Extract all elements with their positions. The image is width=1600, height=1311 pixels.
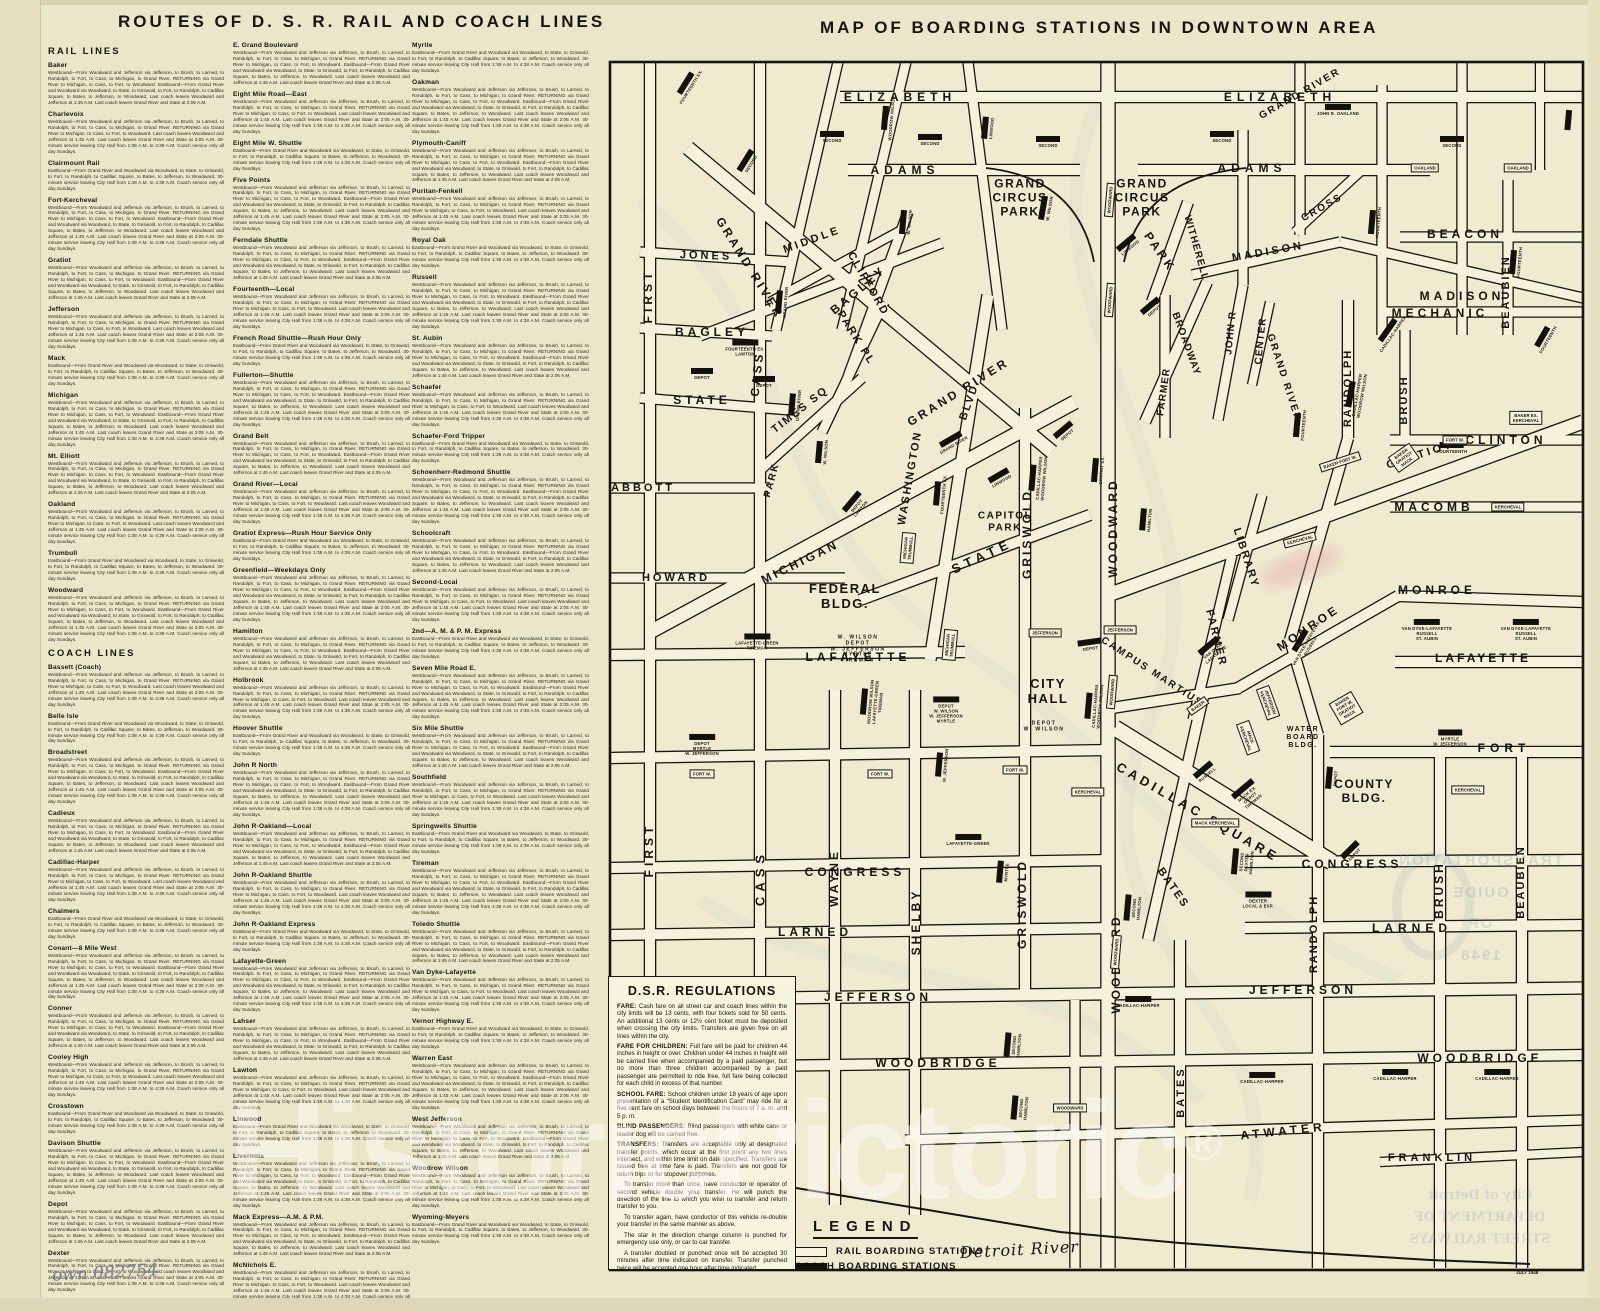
coach-station-marker-second: SECOND xyxy=(1210,131,1234,143)
coach-station-marker-myrtle: MYRTLE xyxy=(996,861,1010,884)
coach-station-bar-icon xyxy=(691,368,713,374)
transit-map-page: ROUTES OF D. S. R. RAIL AND COACH LINES … xyxy=(0,0,1600,1311)
street-label-brush: BRUSH xyxy=(1432,861,1446,919)
coach-station-marker-second: SECOND xyxy=(1036,136,1060,148)
coach-station-bar-icon xyxy=(744,633,770,639)
street-label-congress: CONGRESS xyxy=(805,865,906,879)
coach-station-label: SECOND xyxy=(918,141,942,146)
coach-station-marker-cadillac-harper: CADILLAC-HARPER xyxy=(1116,996,1159,1008)
street-label-beaubien: BEAUBIEN xyxy=(1515,845,1527,918)
street-label-clinton: CLINTON xyxy=(1465,433,1546,447)
coach-station-marker-gratiot-ex: GRATIOT EX. xyxy=(1091,455,1105,485)
street-label-franklin: FRANKLIN xyxy=(1388,1152,1476,1164)
rail-station-swatch-icon xyxy=(795,1247,827,1257)
coach-station-bar-icon xyxy=(1440,136,1464,142)
regulation-paragraph-note-8: A transfer doubled or punched once will … xyxy=(617,1250,787,1270)
rail-station-label-mack-kercheval: MACK KERCHEVAL xyxy=(1191,818,1239,827)
coach-station-label: VAN DYKE-LAFAYETTE RUSSELL ST. AUBIN xyxy=(1501,626,1551,641)
street-label-brush: BRUSH xyxy=(1398,375,1410,424)
watermark-text: HistoricPictoric xyxy=(228,1074,1184,1228)
coach-station-label: VAN DYKE-LAFAYETTE RUSSELL ST. AUBIN xyxy=(1402,626,1452,641)
rail-station-label-oakland: OAKLAND xyxy=(1411,163,1439,172)
coach-station-label: DEPOT xyxy=(691,375,713,380)
coach-station-bar-icon xyxy=(1438,729,1462,735)
street-label-madison: MADISON xyxy=(1420,289,1505,303)
coach-station-marker-fourteenth-ex: FOURTEENTH EX. LAWTON xyxy=(725,339,764,356)
coach-station-bar-icon xyxy=(918,134,942,140)
coach-station-bar-icon xyxy=(732,339,758,345)
street-label-shelby: SHELBY xyxy=(909,889,923,956)
coach-station-marker-lafayette-green: LAFAYETTE-GREEN xyxy=(946,834,989,846)
coach-station-marker-depot: DEPOT xyxy=(691,368,713,380)
coach-station-bar-icon xyxy=(1513,619,1539,625)
coach-station-label: CADILLAC-HARPER xyxy=(1475,1076,1518,1081)
street-label-randolph: RANDOLPH xyxy=(1308,895,1320,973)
coach-station-label: SECOND HAMILTON xyxy=(1010,1033,1022,1058)
rail-station-label-oakland: OAKLAND xyxy=(1504,163,1532,172)
rail-station-label-fort-w: FORT W. xyxy=(1443,435,1468,444)
rail-station-label-michigan: MICHIGAN TRUMBULL xyxy=(900,532,917,564)
coach-station-bar-icon xyxy=(1036,136,1060,142)
coach-station-bar-icon xyxy=(933,696,959,702)
coach-station-label: LAFAYETTE-GREEN TIREMAN xyxy=(735,640,778,650)
coach-station-marker-depot: DEPOT MYRTLE W. JEFFERSON xyxy=(685,734,719,756)
coach-station-marker-woodrow-wilson: WOODROW WILSON LAFAYETTE-GREEN TIREMAN xyxy=(859,679,885,725)
coach-station-bar-icon xyxy=(1484,1069,1510,1075)
regulation-heading: FARE FOR CHILDREN: xyxy=(617,1043,690,1050)
street-label-adams: ADAMS xyxy=(1218,161,1287,175)
coach-station-label: CADILLAC-HARPER xyxy=(1116,1003,1159,1008)
rail-station-label-jefferson: JEFFERSON xyxy=(1029,628,1062,637)
rail-station-label-michigan: MICHIGAN TRUMBULL xyxy=(942,629,959,661)
map-date-note: JULY 1948 xyxy=(1516,1270,1538,1275)
street-label-monroe: MONROE xyxy=(1398,583,1476,597)
street-label-macomb: MACOMB xyxy=(1394,500,1473,514)
coach-station-label: CADILLAC-HARPER xyxy=(1240,1079,1283,1084)
street-label-griswold: GRISWOLD xyxy=(1020,489,1034,579)
coach-station-marker-second: SECOND DEXTER HAMILTON xyxy=(1231,848,1255,876)
coach-station-label: DEPOT MYRTLE W. JEFFERSON xyxy=(685,741,719,756)
street-label-howard: HOWARD xyxy=(642,572,710,584)
street-label-jones: JONES xyxy=(680,249,733,263)
landmark-federal: FEDERAL BLDG. xyxy=(809,582,881,612)
street-label-larned: LARNED xyxy=(778,925,852,939)
coach-station-marker-depot: DEPOT xyxy=(753,376,775,388)
rail-station-label-kercheval: KERCHEVAL xyxy=(1491,502,1524,511)
coach-station-label: JOHN R. OAKLAND xyxy=(1317,111,1359,116)
street-label-griswold: GRISWOLD xyxy=(1015,859,1029,949)
coach-station-bar-icon xyxy=(753,376,775,382)
coach-station-marker-dexter: DEXTER LOCAL & EXP. xyxy=(1242,891,1273,908)
rail-station-label-fort-w: FORT W. xyxy=(690,769,715,778)
coach-station-marker-john-r-oakland: JOHN R. OAKLAND xyxy=(1317,104,1359,116)
coach-station-marker-van-dyke-lafayette: VAN DYKE-LAFAYETTE RUSSELL ST. AUBIN xyxy=(1402,619,1452,641)
landmark-city: CITY HALL xyxy=(1028,677,1069,707)
coach-station-bar-icon xyxy=(1249,1072,1275,1078)
coach-station-label: LAFAYETTE-GREEN xyxy=(946,841,989,846)
street-label-first: FIRST xyxy=(642,823,656,878)
coach-station-marker-w-wilson: W. WILSON xyxy=(899,209,913,235)
street-label-jefferson: JEFFERSON xyxy=(1249,983,1357,997)
coach-station-bar-icon xyxy=(955,834,981,840)
watermark: HistoricPictoric® xyxy=(228,1072,1222,1231)
coach-station-marker-van-dyke-lafayette: VAN DYKE-LAFAYETTE RUSSELL ST. AUBIN xyxy=(1501,619,1551,641)
rail-station-label-fort-w: FORT W. xyxy=(1003,765,1028,774)
coach-station-bar-icon xyxy=(1382,1069,1408,1075)
coach-station-label: CADILLAC-HARPER xyxy=(1373,1076,1416,1081)
street-label-adams: ADAMS xyxy=(871,163,940,177)
coach-station-bar-icon xyxy=(1210,131,1234,137)
coach-station-marker-w-wilson: W. WILSON xyxy=(815,439,829,465)
coach-station-label: SECOND xyxy=(1210,138,1234,143)
coach-station-swatch-icon xyxy=(795,1263,827,1271)
rail-station-label-jefferson: JEFFERSON xyxy=(1104,625,1137,634)
street-label-bagley: BAGLEY xyxy=(675,325,749,339)
rail-station-label-fort-w: FORT W. xyxy=(868,769,893,778)
coach-station-label: SECOND xyxy=(1036,143,1060,148)
street-label-lafayette: LAFAYETTE xyxy=(1435,651,1531,665)
coach-station-marker-second: SECOND HAMILTON xyxy=(1123,894,1142,921)
street-label-elizabeth: ELIZABETH xyxy=(844,90,956,104)
coach-station-marker-depot: DEPOT W. WILSON W. JEFFERSON MYRTLE xyxy=(929,696,963,723)
regulation-paragraph-fare: FARE: Cash fare on all street car and co… xyxy=(617,1003,787,1040)
coach-station-label: SECOND xyxy=(820,138,844,143)
landmark-capitol: CAPITOL PARK xyxy=(978,511,1032,534)
landmark-county: COUNTY BLDG. xyxy=(1334,778,1394,806)
landmark-depot: DEPOT W. WILSON xyxy=(1024,721,1065,733)
coach-station-marker-cadillac-harper: CADILLAC-HARPER xyxy=(1240,1072,1283,1084)
reverse-side-showthrough-imprint: City of Detroit DEPARTMENT OF STREET RAI… xyxy=(1385,1185,1575,1251)
regulation-heading: FARE: xyxy=(617,1003,639,1010)
coach-station-label: MYRTLE W. JEFFERSON xyxy=(1433,736,1467,746)
rail-station-label-kercheval: KERCHEVAL xyxy=(1071,787,1104,796)
street-label-cass: CASS xyxy=(753,850,768,906)
coach-station-bar-icon xyxy=(820,131,844,137)
coach-station-label: DEXTER LOCAL & EXP. xyxy=(1242,898,1273,908)
street-label-larned: LARNED xyxy=(1372,921,1452,935)
coach-station-marker-linwood: LINWOOD xyxy=(981,117,995,140)
coach-station-bar-icon xyxy=(1245,891,1271,897)
coach-station-marker-myrtle: MYRTLE W. JEFFERSON xyxy=(1433,729,1467,746)
regulations-title: D.S.R. REGULATIONS xyxy=(617,984,787,998)
coach-station-bar-icon xyxy=(1414,619,1440,625)
coach-station-marker-second: SECOND xyxy=(1440,136,1464,148)
street-label-woodbridge: WOODBRIDGE xyxy=(1417,1051,1542,1065)
legend-item-coach: COACH BOARDING STATIONS xyxy=(795,1261,1065,1272)
landmark-grand: GRAND CIRCUS PARK xyxy=(1114,177,1169,218)
street-label-woodward: WOODWARD xyxy=(1106,478,1120,577)
coach-station-marker-second: SECOND HAMILTON xyxy=(1003,1032,1022,1057)
street-label-first: FIRST xyxy=(641,269,655,324)
landmark-w-wilson: W. WILSON DEPOT W. JEFFERSON MYRTLE TIRE… xyxy=(830,636,885,665)
coach-station-label: SECOND DEXTER HAMILTON xyxy=(1238,849,1255,876)
street-label-fort: FORT xyxy=(1478,741,1531,755)
rail-station-label-kercheval: KERCHEVAL xyxy=(1451,785,1484,794)
coach-station-marker-hamilton: HAMILTON xyxy=(1139,508,1153,532)
street-label-abbott: ABBOTT xyxy=(611,482,675,494)
coach-station-marker-cadillac-harper: CADILLAC-HARPER xyxy=(1475,1069,1518,1081)
coach-station-label: FOURTEENTH xyxy=(1437,449,1468,454)
street-label-woodbridge: WOODBRIDGE xyxy=(875,1056,1000,1070)
street-label-beacon: BEACON xyxy=(1427,227,1503,241)
street-label-state: STATE xyxy=(673,393,731,407)
coach-station-marker-second: SECOND xyxy=(820,131,844,143)
coach-station-bar-icon xyxy=(689,734,715,740)
rail-station-label-baker-ex: BAKER EX. KERCHEVAL xyxy=(1509,411,1542,425)
landmark-water: WATER BOARD BLDG. xyxy=(1286,726,1319,750)
coach-station-bar-icon xyxy=(1325,104,1351,110)
registered-mark-icon: ® xyxy=(1184,1114,1222,1172)
street-label-jefferson: JEFFERSON xyxy=(824,990,932,1004)
coach-station-label: DEPOT xyxy=(753,383,775,388)
coach-station-label: SECOND xyxy=(1440,143,1464,148)
coach-station-marker-lafayette-green: LAFAYETTE-GREEN TIREMAN xyxy=(735,633,778,650)
coach-station-bar-icon xyxy=(1125,996,1151,1002)
coach-station-marker-second: SECOND xyxy=(918,134,942,146)
coach-station-label: FOURTEENTH EX. LAWTON xyxy=(725,346,764,356)
coach-station-marker-cadillac-harper: CADILLAC-HARPER xyxy=(1373,1069,1416,1081)
coach-station-marker-depot: DEPOT xyxy=(1325,767,1339,790)
regulation-paragraph-note-7: The star in the direction change column … xyxy=(617,1232,787,1247)
coach-station-label: DEPOT W. WILSON W. JEFFERSON MYRTLE xyxy=(929,703,963,723)
